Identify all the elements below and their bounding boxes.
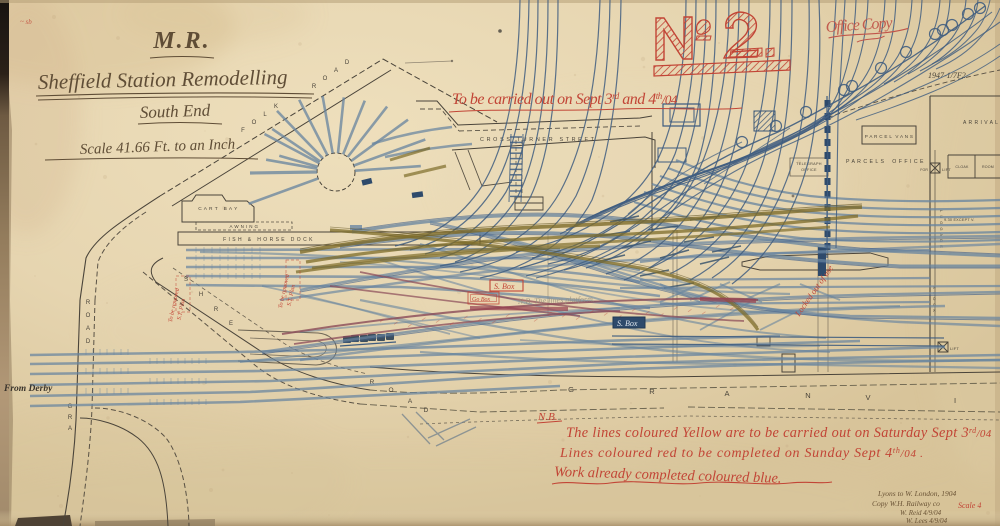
- svg-text:From Derby: From Derby: [3, 384, 53, 394]
- svg-text:D: D: [345, 60, 350, 66]
- svg-text:S. Box: S. Box: [617, 319, 638, 328]
- svg-text:L U G G A G E: L U G G A G E: [939, 210, 944, 249]
- svg-text:W. Lees 4/9/04: W. Lees 4/9/04: [906, 517, 948, 525]
- svg-text:M.R.: M.R.: [152, 28, 210, 54]
- svg-text:D: D: [86, 339, 91, 345]
- svg-text:N: N: [805, 391, 810, 400]
- svg-text:1947-1/7F2: 1947-1/7F2: [928, 71, 966, 80]
- svg-text:V: V: [865, 393, 870, 402]
- svg-text:South End: South End: [139, 101, 210, 122]
- svg-text:R: R: [312, 84, 317, 90]
- svg-text:H: H: [199, 292, 203, 298]
- svg-text:OFFICE: OFFICE: [801, 168, 817, 172]
- svg-text:Go Box: Go Box: [472, 297, 490, 303]
- svg-text:CLOAK: CLOAK: [955, 165, 969, 169]
- svg-text:S: S: [184, 277, 188, 283]
- svg-text:FOR: FOR: [920, 168, 928, 172]
- svg-text:A: A: [408, 398, 413, 405]
- svg-text:9.30 EXCEPT V.: 9.30 EXCEPT V.: [944, 218, 975, 222]
- svg-text:C A R T B A Y: C A R T B A Y: [198, 206, 238, 212]
- svg-text:Lines coloured red to be comp: Lines coloured red to be completed on Su…: [559, 446, 924, 461]
- svg-text:P A R C E L S O F F I C E: P A R C E L S O F F I C E: [846, 159, 924, 165]
- svg-text:A: A: [724, 389, 729, 398]
- svg-text:Scale 4: Scale 4: [958, 501, 981, 510]
- svg-text:O: O: [86, 313, 91, 319]
- svg-text:D: D: [424, 407, 429, 414]
- svg-text:S. Box: S. Box: [494, 282, 515, 291]
- svg-text:ROOM: ROOM: [982, 165, 994, 169]
- svg-text:~ sb: ~ sb: [20, 18, 32, 26]
- svg-text:W. Reid 4/9/04: W. Reid 4/9/04: [900, 509, 942, 517]
- svg-text:The lines coloured Yellow are: The lines coloured Yellow are to be carr…: [566, 425, 992, 441]
- svg-text:Copy W.H. Railway co: Copy W.H. Railway co: [872, 499, 940, 508]
- svg-text:R: R: [214, 307, 219, 313]
- svg-text:R: R: [649, 387, 655, 396]
- svg-text:Lyons to W. London, 1904: Lyons to W. London, 1904: [877, 489, 957, 498]
- svg-text:A: A: [334, 68, 338, 74]
- svg-text:TELEGRAPH: TELEGRAPH: [796, 162, 822, 166]
- svg-text:P A R C E L V A N S: P A R C E L V A N S: [865, 134, 914, 139]
- svg-text:G: G: [568, 385, 574, 394]
- svg-text:F: F: [241, 128, 245, 134]
- svg-text:K: K: [274, 104, 278, 110]
- svg-text:E: E: [229, 321, 233, 327]
- svg-text:I: I: [954, 396, 956, 405]
- svg-text:A R R I V A L: A R R I V A L: [963, 120, 998, 126]
- svg-text:A W N I N G: A W N I N G: [230, 224, 259, 229]
- svg-text:O: O: [252, 120, 257, 126]
- svg-text:To be carried out on Sept 3rd: To be carried out on Sept 3rd and 4th/04: [452, 91, 678, 108]
- svg-text:A: A: [86, 326, 90, 332]
- svg-text:O: O: [323, 76, 328, 82]
- svg-text:F I S H & H O R S E D O: F I S H & H O R S E D O C K: [223, 237, 313, 243]
- svg-text:S T O C K: S T O C K: [932, 286, 937, 313]
- svg-text:A: A: [68, 426, 72, 432]
- svg-text:R: R: [68, 415, 73, 421]
- svg-text:LIFT: LIFT: [942, 167, 951, 172]
- svg-text:O: O: [388, 387, 393, 394]
- svg-text:R: R: [86, 300, 91, 306]
- svg-text:LIFT: LIFT: [950, 346, 959, 351]
